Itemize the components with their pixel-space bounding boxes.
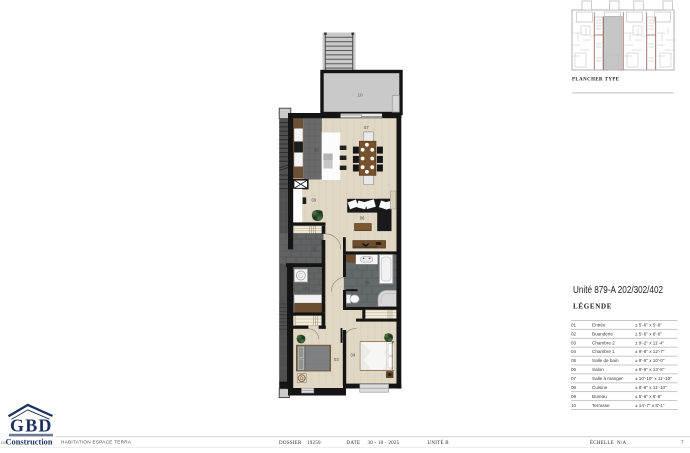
svg-text:05: 05 (571, 358, 577, 363)
svg-text:DE: DE (1, 440, 7, 445)
svg-text:± 9'-9" x 10'-0": ± 9'-9" x 10'-0" (635, 358, 665, 363)
svg-text:DATE: DATE (347, 441, 361, 446)
svg-text:LÉGENDE: LÉGENDE (573, 302, 612, 310)
svg-text:UNITÉ B: UNITÉ B (428, 440, 450, 446)
svg-text:Construction: Construction (6, 436, 53, 446)
svg-text:04: 04 (351, 353, 356, 358)
svg-text:Cuisine: Cuisine (592, 385, 608, 390)
svg-text:07: 07 (571, 376, 577, 381)
svg-text:± 5'-8" x 6'-8": ± 5'-8" x 6'-8" (635, 394, 662, 399)
svg-text:Chambre 2: Chambre 2 (592, 340, 615, 345)
svg-text:30 - 10 - 2025: 30 - 10 - 2025 (368, 441, 400, 446)
svg-text:Salon: Salon (592, 367, 604, 372)
svg-text:07: 07 (364, 125, 369, 130)
svg-text:ÉCHELLE: ÉCHELLE (590, 440, 614, 446)
svg-text:03: 03 (334, 357, 339, 362)
svg-text:10: 10 (358, 93, 364, 98)
svg-text:± 5'-6" x 8'-6": ± 5'-6" x 8'-6" (635, 331, 662, 336)
svg-text:± 8'-6" x 11'-10": ± 8'-6" x 11'-10" (635, 385, 667, 390)
svg-text:04: 04 (571, 349, 577, 354)
svg-text:08: 08 (314, 148, 319, 153)
svg-text:02: 02 (305, 286, 310, 291)
svg-text:Unité 879-A 202/302/402: Unité 879-A 202/302/402 (573, 285, 663, 296)
svg-text:± 9'-2" x 11'-4": ± 9'-2" x 11'-4" (635, 340, 665, 345)
svg-text:± 5'-6" x 5'-6": ± 5'-6" x 5'-6" (635, 322, 662, 327)
svg-text:05: 05 (365, 280, 370, 285)
svg-text:Bureau: Bureau (592, 394, 607, 399)
svg-text:01: 01 (311, 247, 316, 252)
svg-text:HABITATION ESPACE TERRA: HABITATION ESPACE TERRA (61, 440, 132, 445)
svg-text:09: 09 (571, 394, 577, 399)
svg-text:PLANCHER TYPE: PLANCHER TYPE (572, 78, 620, 83)
svg-text:± 10'-10" x 11'-10": ± 10'-10" x 11'-10" (635, 376, 672, 381)
svg-text:DOSSIER: DOSSIER (279, 441, 302, 446)
svg-text:± 9'-9" x 12'-7": ± 9'-9" x 12'-7" (635, 349, 665, 354)
svg-text:Entrée: Entrée (592, 322, 606, 327)
svg-text:± 14'-7" x 8'-1": ± 14'-7" x 8'-1" (635, 403, 665, 408)
svg-text:19250: 19250 (307, 441, 321, 446)
svg-text:10: 10 (571, 403, 577, 408)
svg-text:06: 06 (360, 216, 365, 221)
svg-text:Salle à manger: Salle à manger (592, 376, 623, 381)
svg-text:09: 09 (312, 198, 317, 203)
svg-text:Salle de bain: Salle de bain (592, 358, 619, 363)
svg-text:N/A: N/A (617, 441, 627, 446)
svg-text:± 9'-9" x 13'-8": ± 9'-9" x 13'-8" (635, 367, 665, 372)
svg-text:03: 03 (571, 340, 577, 345)
svg-text:02: 02 (571, 331, 577, 336)
svg-text:06: 06 (571, 367, 577, 372)
svg-text:Chambre 1: Chambre 1 (592, 349, 615, 354)
svg-text:08: 08 (571, 385, 577, 390)
svg-text:Terrasse: Terrasse (592, 403, 610, 408)
svg-text:Buanderie: Buanderie (592, 331, 613, 336)
svg-text:GBD: GBD (10, 416, 53, 436)
svg-text:01: 01 (571, 322, 577, 327)
